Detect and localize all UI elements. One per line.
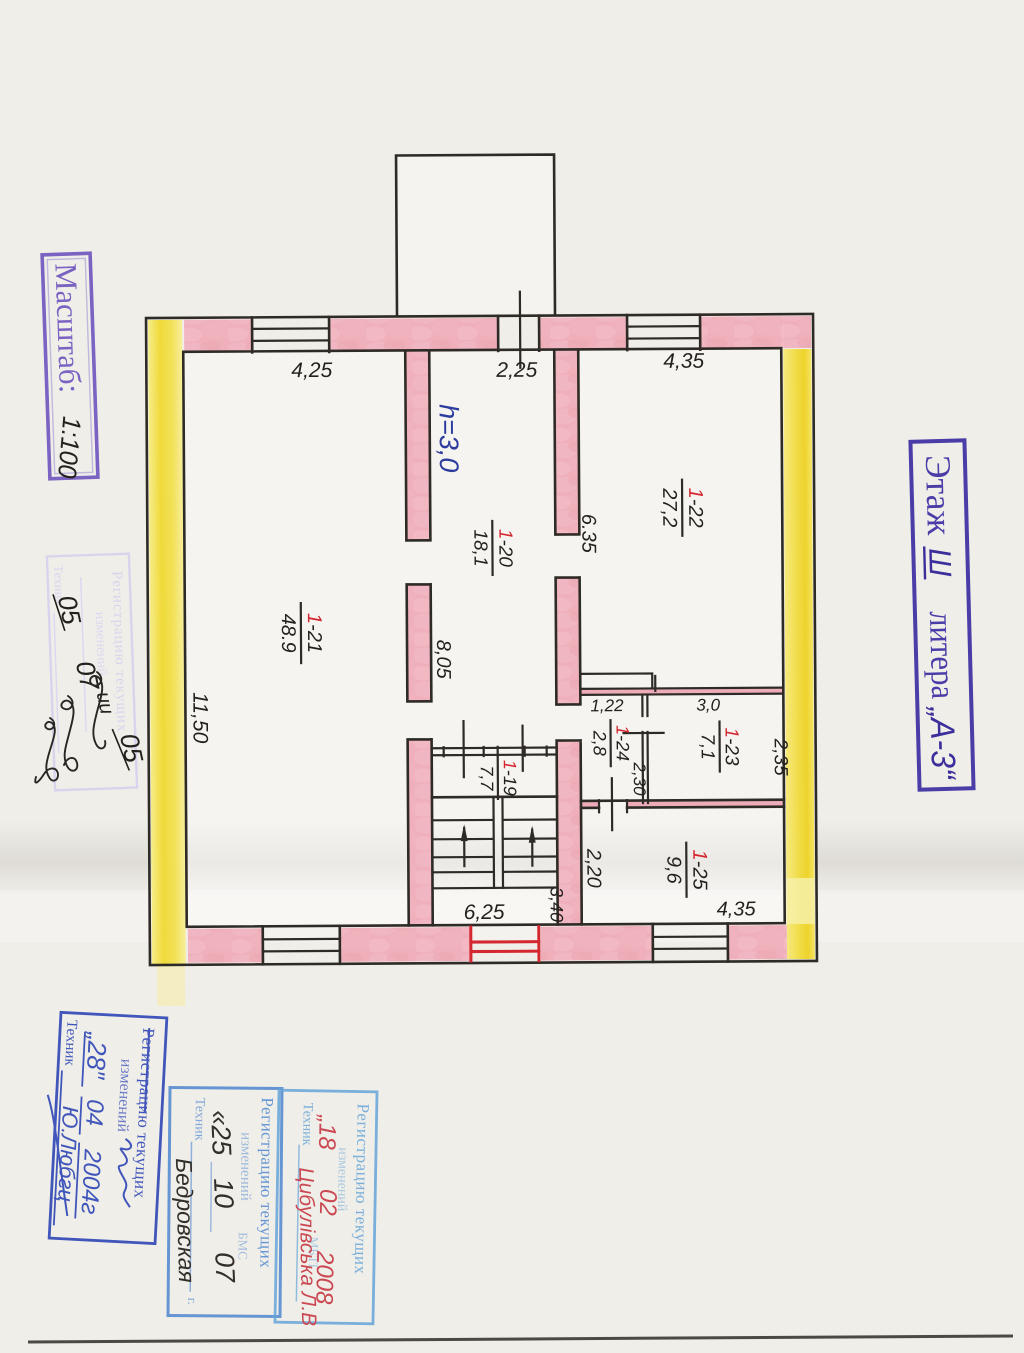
svg-text:07: 07 — [209, 1251, 240, 1283]
svg-text:6,25: 6,25 — [464, 901, 505, 924]
svg-text:1-20: 1-20 — [494, 529, 515, 568]
svg-text:1-22: 1-22 — [684, 488, 706, 528]
svg-text:6.35: 6.35 — [577, 514, 599, 554]
svg-text:h=3,0: h=3,0 — [434, 404, 464, 473]
svg-text:04: 04 — [80, 1099, 108, 1127]
svg-text:48.9: 48.9 — [277, 614, 299, 653]
svg-text:ии: ии — [92, 690, 118, 716]
svg-text:4,35: 4,35 — [663, 350, 704, 373]
svg-text:Бедровская: Бедровская — [171, 1158, 200, 1283]
svg-text:8,05: 8,05 — [432, 640, 454, 680]
svg-text:«25: «25 — [205, 1109, 237, 1156]
svg-text:1-24: 1-24 — [613, 725, 633, 761]
svg-text:7,7: 7,7 — [477, 765, 497, 791]
svg-text:1-21: 1-21 — [303, 613, 325, 653]
svg-text:Техник: Техник — [61, 1020, 79, 1067]
svg-text:1-23: 1-23 — [721, 727, 742, 766]
svg-text:4,25: 4,25 — [291, 359, 332, 382]
svg-text:Цибулівська Л.В: Цибулівська Л.В — [294, 1167, 320, 1326]
svg-text:1-19: 1-19 — [500, 760, 520, 796]
svg-text:18,1: 18,1 — [469, 529, 490, 566]
svg-text:2,20: 2,20 — [582, 848, 604, 888]
svg-text:„18: „18 — [313, 1114, 341, 1151]
svg-text:4,35: 4,35 — [717, 898, 757, 920]
svg-text:„А-3“: „А-3“ — [922, 705, 962, 781]
svg-text:3,40: 3,40 — [547, 887, 567, 922]
svg-text:9,6: 9,6 — [662, 856, 684, 885]
svg-text:2,8: 2,8 — [590, 730, 610, 756]
svg-text:11,50: 11,50 — [188, 692, 211, 743]
svg-text:1,22: 1,22 — [590, 696, 624, 715]
svg-text:1:100: 1:100 — [52, 415, 87, 480]
svg-text:27,2: 27,2 — [658, 487, 680, 527]
svg-text:г.: г. — [185, 1298, 200, 1305]
svg-text:3,0: 3,0 — [696, 696, 720, 715]
svg-text:Техник: Техник — [299, 1103, 315, 1146]
svg-text:10: 10 — [208, 1177, 239, 1208]
svg-text:Техник: Техник — [192, 1098, 207, 1141]
svg-text:Регистрацию текущих: Регистрацию текущих — [351, 1103, 373, 1274]
svg-text:Ш: Ш — [922, 548, 958, 578]
svg-text:7,1: 7,1 — [697, 733, 718, 760]
svg-text:2,30: 2,30 — [630, 761, 649, 796]
svg-text:Масштаб:: Масштаб: — [48, 262, 88, 393]
svg-text:Регистрацию текущих: Регистрацию текущих — [256, 1097, 276, 1268]
svg-text:2,35: 2,35 — [770, 738, 791, 777]
svg-text:1-25: 1-25 — [688, 850, 710, 891]
svg-text:литера: литера — [922, 611, 961, 700]
svg-text:изменений: изменений — [237, 1132, 254, 1201]
svg-text:Этаж: Этаж — [918, 455, 960, 537]
svg-text:2,25: 2,25 — [495, 359, 537, 382]
